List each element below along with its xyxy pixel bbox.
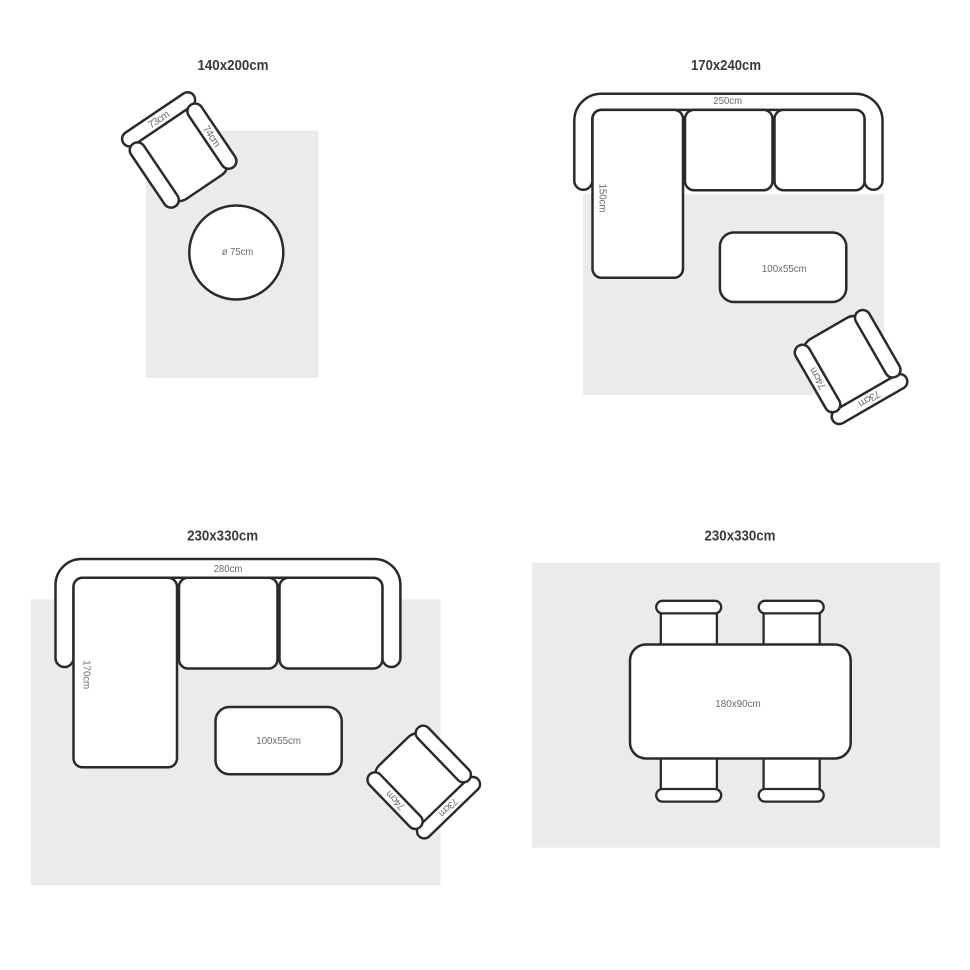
svg-text:100x55cm: 100x55cm [762,264,807,275]
svg-text:ø 75cm: ø 75cm [222,247,254,258]
svg-text:230x330cm: 230x330cm [705,527,776,544]
svg-text:180x90cm: 180x90cm [715,699,761,710]
svg-text:150cm: 150cm [596,184,607,213]
svg-text:250cm: 250cm [713,96,742,107]
svg-text:140x200cm: 140x200cm [198,57,269,74]
svg-text:170cm: 170cm [81,660,92,689]
svg-text:100x55cm: 100x55cm [256,736,301,747]
svg-text:170x240cm: 170x240cm [691,57,761,74]
svg-text:230x330cm: 230x330cm [187,527,258,544]
svg-text:280cm: 280cm [214,564,243,575]
